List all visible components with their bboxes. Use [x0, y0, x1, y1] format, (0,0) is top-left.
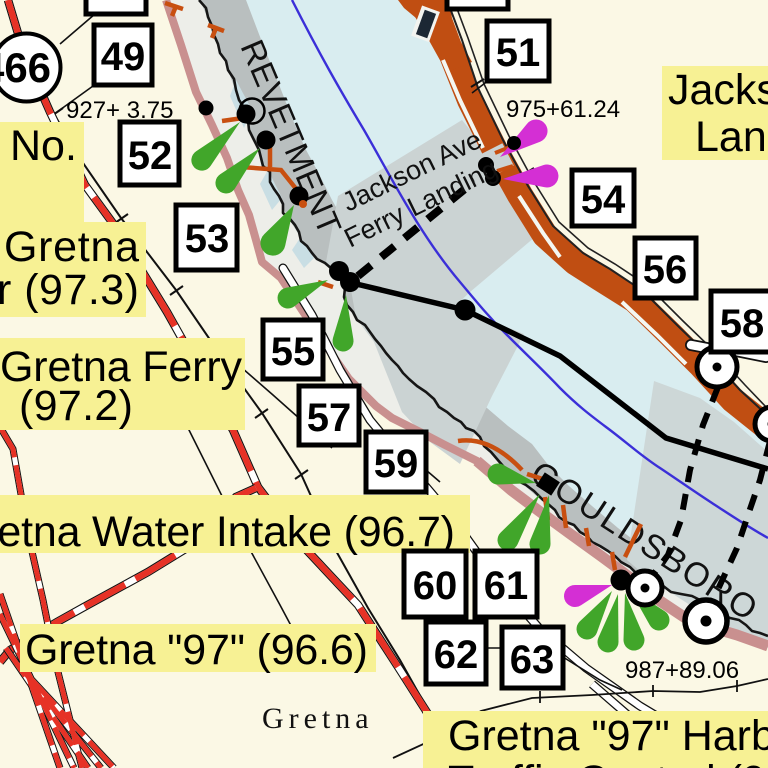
svg-text:63: 63: [510, 638, 555, 682]
svg-text:Gretna "97" (96.6): Gretna "97" (96.6): [25, 626, 368, 674]
svg-text:No.: No.: [10, 122, 77, 170]
svg-text:Gretna: Gretna: [4, 223, 139, 271]
svg-text:58: 58: [720, 302, 765, 346]
svg-text:Jackson: Jackson: [668, 66, 768, 114]
svg-text:57: 57: [307, 396, 352, 440]
svg-text:56: 56: [643, 248, 688, 292]
svg-text:54: 54: [581, 178, 626, 222]
svg-text:55: 55: [271, 330, 316, 374]
svg-text:466: 466: [0, 44, 51, 91]
svg-text:51: 51: [496, 31, 541, 75]
svg-text:62: 62: [434, 633, 479, 677]
svg-text:r (97.3): r (97.3): [0, 266, 139, 314]
svg-text:60: 60: [413, 564, 458, 608]
svg-text:49: 49: [101, 35, 146, 79]
svg-text:Landing: Landing: [695, 113, 768, 161]
svg-text:Gretna Water Intake (96.7): Gretna Water Intake (96.7): [0, 508, 455, 556]
svg-text:Gretna "97" Harbo: Gretna "97" Harbo: [448, 712, 768, 760]
svg-text:53: 53: [185, 217, 230, 261]
svg-text:61: 61: [484, 564, 529, 608]
svg-text:987+89.06: 987+89.06: [625, 657, 739, 684]
svg-text:(97.2): (97.2): [19, 382, 133, 430]
svg-text:59: 59: [374, 442, 419, 486]
svg-text:975+61.24: 975+61.24: [506, 96, 620, 123]
svg-text:52: 52: [128, 134, 173, 178]
svg-text:Traffic Control (9: Traffic Control (9: [448, 757, 766, 768]
svg-text:Gretna: Gretna: [262, 702, 374, 735]
